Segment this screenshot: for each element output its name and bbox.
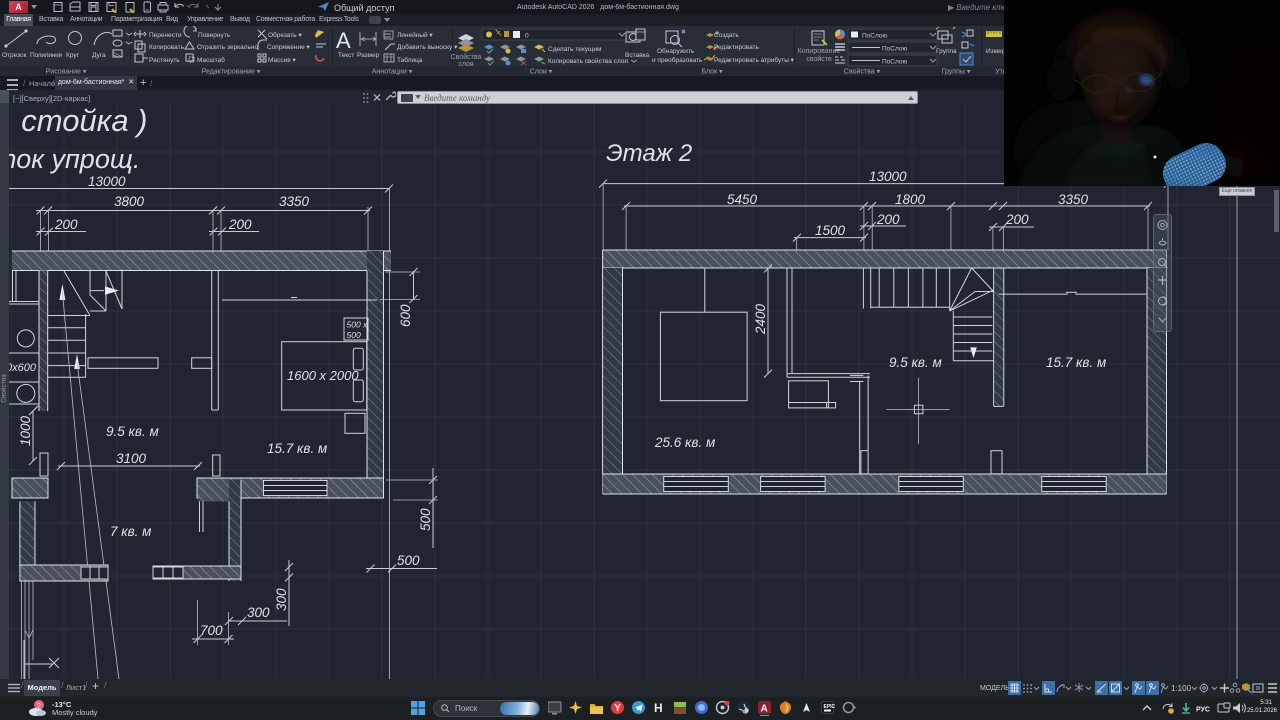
svg-text:Слои ▾: Слои ▾ [530,69,553,76]
svg-text:Рисование ▾: Рисование ▾ [46,69,87,76]
svg-text:2400: 2400 [753,303,768,335]
svg-text:Редактирование ▾: Редактирование ▾ [202,69,261,76]
svg-text:Редактировать атрибуты ▾: Редактировать атрибуты ▾ [714,56,795,64]
svg-text:Этаж 2: Этаж 2 [606,140,692,167]
svg-text:25.6 кв. м: 25.6 кв. м [654,435,715,450]
svg-text:Сделать текущим: Сделать текущим [548,46,602,53]
svg-text:1800: 1800 [895,192,926,207]
svg-text:Редактировать: Редактировать [714,44,760,51]
svg-text:13000: 13000 [88,174,126,189]
svg-text:5450: 5450 [727,192,758,207]
svg-text:Добавить выноску ▾: Добавить выноску ▾ [397,43,458,51]
svg-text:Растянуть: Растянуть [149,57,180,64]
svg-text:500 x: 500 x [347,320,369,330]
svg-text:600: 600 [398,304,413,327]
svg-text:9.5 кв. м: 9.5 кв. м [889,355,942,370]
svg-text:0x600: 0x600 [6,362,37,374]
svg-text:Создать: Создать [714,32,739,39]
svg-text:Полилиния: Полилиния [30,52,63,59]
svg-text:15.7 кв. м: 15.7 кв. м [267,441,327,456]
svg-text:ПоСлою: ПоСлою [882,59,907,66]
svg-text:3800: 3800 [114,194,145,209]
svg-text:500: 500 [347,330,361,340]
svg-text:1500: 1500 [815,223,846,238]
svg-text:EPIC: EPIC [824,704,836,710]
svg-text:Текст: Текст [338,52,354,59]
svg-text:Копировать свойства слоя: Копировать свойства слоя [548,57,628,65]
svg-text:Отрезок: Отрезок [2,52,27,59]
svg-text:200: 200 [54,217,78,232]
svg-text:Свойства: Свойства [451,53,482,61]
svg-text:Группы ▾: Группы ▾ [942,69,971,76]
svg-text:13000: 13000 [869,169,907,184]
svg-text:Y: Y [614,703,621,714]
svg-text:200: 200 [228,217,252,232]
svg-text:300: 300 [247,605,270,620]
svg-text:Копировать: Копировать [149,44,185,51]
svg-text:ПоСлою: ПоСлою [862,33,887,40]
svg-text:200: 200 [876,212,900,227]
svg-text:Массив ▾: Массив ▾ [268,57,296,64]
svg-text:Перенести: Перенести [149,32,182,39]
svg-text:Размер: Размер [357,52,380,59]
svg-text:7 кв. м: 7 кв. м [110,524,151,539]
svg-text:Обрезать ▾: Обрезать ▾ [268,31,302,39]
svg-text:9.5 кв. м: 9.5 кв. м [106,424,159,439]
svg-text:свойств: свойств [806,55,832,63]
svg-text:Таблица: Таблица [397,56,423,64]
svg-text:ток упрощ.: ток упрощ. [0,144,140,174]
svg-text:Отразить зеркально: Отразить зеркально [197,44,258,51]
svg-text:15.7 кв. м: 15.7 кв. м [1046,355,1106,370]
svg-text:. стойка ): . стойка ) [4,103,148,138]
svg-text:Обнаружить: Обнаружить [657,47,695,55]
svg-text:Круг: Круг [66,52,80,59]
svg-text:Свойства ▾: Свойства ▾ [844,68,881,76]
svg-text:Масштаб: Масштаб [197,56,225,64]
svg-text:Группа: Группа [936,48,957,55]
svg-text:1600 x 2000: 1600 x 2000 [287,368,359,383]
svg-text:500: 500 [397,553,420,568]
svg-text:ПоСлою: ПоСлою [882,46,907,53]
svg-text:Линейный ▾: Линейный ▾ [397,31,433,39]
svg-text:Повернуть: Повернуть [198,32,231,39]
svg-text:3100: 3100 [116,451,147,466]
svg-text:A: A [336,28,351,53]
svg-text:A: A [761,704,768,715]
svg-text:Копирование: Копирование [798,48,841,55]
svg-text:1:100: 1:100 [1171,684,1192,693]
svg-text:Дуга: Дуга [92,52,106,59]
svg-text:700: 700 [200,623,223,638]
svg-text:и преобразовать: и преобразовать [652,56,703,64]
svg-text:Аннотации ▾: Аннотации ▾ [372,69,413,76]
svg-text:H: H [654,701,663,715]
svg-text:200: 200 [1005,212,1029,227]
svg-text:Сопряжение ▾: Сопряжение ▾ [267,44,310,51]
svg-text:Блок ▾: Блок ▾ [701,69,723,76]
svg-text:РУС: РУС [1196,707,1210,714]
svg-text:слоя: слоя [458,61,474,68]
svg-text:500: 500 [418,508,433,531]
svg-text:Вставка: Вставка [625,52,650,59]
svg-text:300: 300 [274,588,289,611]
svg-text:3350: 3350 [279,194,310,209]
svg-text:0: 0 [525,33,529,40]
svg-text:3350: 3350 [1058,192,1089,207]
svg-text:1000: 1000 [18,415,33,446]
